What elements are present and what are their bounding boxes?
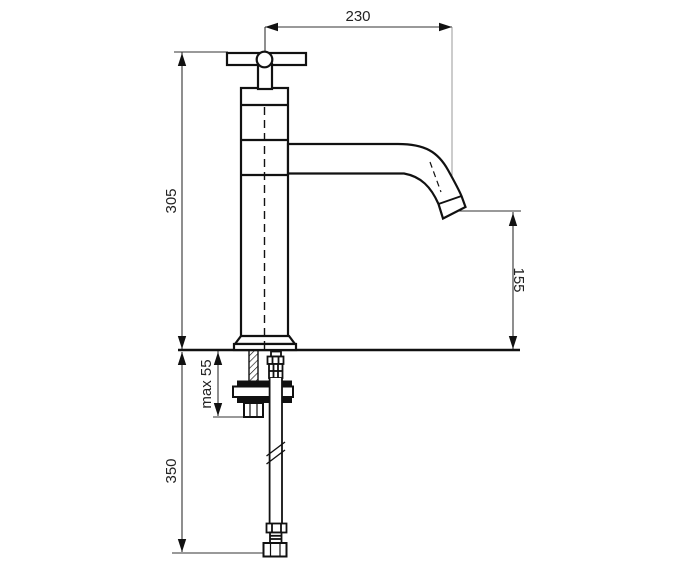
fixing-nut [244, 403, 263, 417]
faucet-spout [288, 144, 466, 219]
arrowhead-down-icon [178, 539, 186, 552]
arrowhead-down-icon [178, 336, 186, 349]
dimension-label-hose-length: 350 [163, 458, 180, 483]
arrowhead-down-icon [214, 403, 222, 416]
faucet-handle [227, 52, 306, 89]
dimension-label-deck-thickness: max 55 [198, 359, 215, 408]
arrowhead-up-icon [178, 53, 186, 66]
technical-drawing-canvas: 230 305 155 max 55 350 [0, 0, 693, 567]
hose-bottom-fitting [264, 524, 287, 557]
dimension-outlet-height: 155 [458, 211, 527, 349]
hose-tube-fill [269, 378, 283, 524]
arrowhead-right-icon [439, 23, 452, 31]
dimension-label-outlet-height: 155 [510, 267, 527, 292]
arrowhead-up-icon [178, 352, 186, 365]
arrowhead-down-icon [509, 336, 517, 349]
handle-hub [257, 52, 273, 68]
arrowhead-left-icon [265, 23, 278, 31]
arrowhead-up-icon [509, 213, 517, 226]
mounting-plate [233, 387, 293, 398]
dimension-total-height: 305 [163, 52, 228, 350]
dimension-label-total-height: 305 [163, 188, 180, 213]
hose-top-connector [268, 352, 284, 379]
arrowhead-up-icon [214, 352, 222, 365]
faucet-dimension-drawing: 230 305 155 max 55 350 [0, 0, 693, 567]
dimension-label-spout-reach: 230 [345, 8, 370, 25]
